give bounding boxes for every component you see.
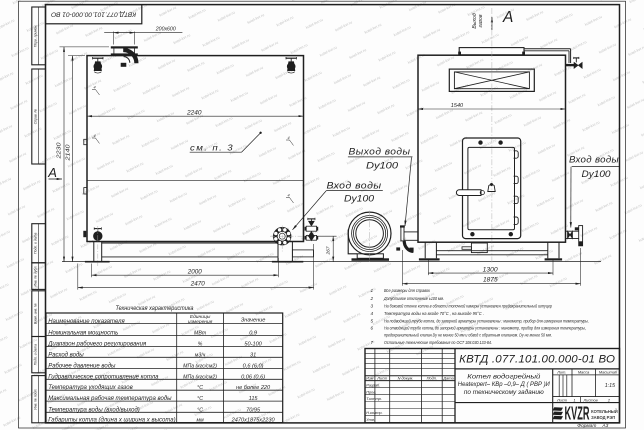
svg-text:Все размеры для справок: Все размеры для справок xyxy=(384,288,431,293)
svg-text:Значение: Значение xyxy=(241,318,266,324)
svg-text:Справ. №: Справ. № xyxy=(34,108,38,124)
svg-text:Техническая характеристика: Техническая характеристика xyxy=(116,306,195,312)
svg-text:Инв. № подл.: Инв. № подл. xyxy=(34,389,38,410)
svg-text:Максимальная рабочая температу: Максимальная рабочая температура воды xyxy=(48,396,172,402)
svg-text:Номинальная мощность: Номинальная мощность xyxy=(48,331,118,337)
svg-text:Остальные технические требован: Остальные технические требования по ОСТ … xyxy=(384,340,492,345)
svg-text:КОТЕЛЬНЫЙ: КОТЕЛЬНЫЙ xyxy=(591,409,618,414)
svg-text:1300: 1300 xyxy=(483,267,499,274)
svg-text:Подп.: Подп. xyxy=(427,376,437,381)
svg-text:Наименование показателя: Наименование показателя xyxy=(48,319,125,325)
svg-text:Выход воды: Выход воды xyxy=(349,147,411,157)
svg-text:Листов: Листов xyxy=(583,398,598,403)
svg-text:Лит.: Лит. xyxy=(556,370,566,375)
svg-text:Перв. примен.: Перв. примен. xyxy=(34,25,38,48)
svg-text:7: 7 xyxy=(371,340,374,345)
svg-text:A: A xyxy=(47,165,57,180)
svg-text:Подп. и дата: Подп. и дата xyxy=(34,344,38,365)
svg-text:%: % xyxy=(198,341,203,347)
svg-text:МПа (кгс/см2): МПа (кгс/см2) xyxy=(183,363,217,369)
svg-text:Н.контр.: Н.контр. xyxy=(366,410,382,415)
svg-text:Гидравлическое сопротивление к: Гидравлическое сопротивление котла xyxy=(48,374,159,380)
svg-text:Допустимое отклонение ±100 мм: Допустимое отклонение ±100 мм. xyxy=(383,296,444,301)
svg-text:2470: 2470 xyxy=(190,281,205,288)
svg-text:1: 1 xyxy=(371,288,374,293)
svg-text:°С: °С xyxy=(197,396,203,402)
svg-text:1875: 1875 xyxy=(483,276,498,283)
svg-text:Диапазон рабочего регулировани: Диапазон рабочего регулирования xyxy=(47,341,147,347)
svg-text:4: 4 xyxy=(94,134,96,138)
svg-text:МПа (кгс/см2): МПа (кгс/см2) xyxy=(183,374,217,380)
svg-text:Лист: Лист xyxy=(556,398,568,403)
svg-text:Формат: Формат xyxy=(577,423,596,429)
svg-text:0,06 (0,6): 0,06 (0,6) xyxy=(241,374,265,380)
svg-text:2: 2 xyxy=(370,296,374,301)
svg-text:см. п. 3: см. п. 3 xyxy=(190,142,234,152)
svg-text:Рабочее давление воды: Рабочее давление воды xyxy=(48,363,116,369)
svg-text:6: 6 xyxy=(371,326,374,331)
svg-text:1:15: 1:15 xyxy=(605,383,615,389)
svg-text:Температура воды на входе 70°: Температура воды на входе 70°С , на выхо… xyxy=(384,311,484,316)
svg-text:КВТД .077.101.00.000-01 ВО: КВТД .077.101.00.000-01 ВО xyxy=(459,353,615,365)
svg-text:Температура уходящих газов: Температура уходящих газов xyxy=(48,385,133,391)
svg-text:не более 220: не более 220 xyxy=(236,385,271,391)
svg-text:Взам. инв. №: Взам. инв. № xyxy=(34,303,38,324)
svg-text:2240: 2240 xyxy=(186,109,202,116)
svg-text:4: 4 xyxy=(94,86,96,90)
svg-text:50-100: 50-100 xyxy=(244,341,262,347)
svg-text:4: 4 xyxy=(371,311,374,316)
svg-text:На боковой стенке котла в обла: На боковой стенке котла в области топочн… xyxy=(384,302,552,308)
svg-text:KVZR: KVZR xyxy=(565,403,590,423)
svg-text:предохранительный клапан Dу н: предохранительный клапан Dу не менее 50 … xyxy=(384,332,552,338)
svg-text:3: 3 xyxy=(371,303,374,308)
svg-text:1540: 1540 xyxy=(451,103,463,109)
svg-text:Лист: Лист xyxy=(376,376,388,381)
svg-text:31: 31 xyxy=(250,352,256,358)
svg-text:2470х1875х2230: 2470х1875х2230 xyxy=(231,418,276,424)
svg-text:2140: 2140 xyxy=(65,143,71,161)
svg-text:Dy100: Dy100 xyxy=(366,160,398,170)
svg-text:200х600: 200х600 xyxy=(155,27,176,33)
svg-text:Утв.: Утв. xyxy=(366,417,375,422)
svg-text:Масса: Масса xyxy=(578,370,590,375)
svg-text:0,6 (6,0): 0,6 (6,0) xyxy=(243,363,264,369)
svg-text:°С: °С xyxy=(197,385,203,391)
svg-text:5: 5 xyxy=(371,318,374,323)
svg-text:Расход воды: Расход воды xyxy=(48,352,84,358)
svg-text:На подводящей трубе котла, до: На подводящей трубе котла, до запорной а… xyxy=(384,317,589,323)
svg-text:На отводящей трубе котла, до з: На отводящей трубе котла, до запорной ар… xyxy=(384,325,586,331)
svg-text:газов: газов xyxy=(478,14,484,27)
svg-text:измерения: измерения xyxy=(188,320,213,325)
svg-text:4: 4 xyxy=(288,194,290,198)
svg-text:0,9: 0,9 xyxy=(249,331,257,337)
svg-text:Котел водогрейный: Котел водогрейный xyxy=(467,372,541,380)
svg-text:Габариты котла (длина х ширина: Габариты котла (длина х ширина х высота) xyxy=(48,418,175,424)
svg-text:Вход воды: Вход воды xyxy=(569,155,619,165)
svg-text:°С: °С xyxy=(197,407,203,413)
svg-text:70/95: 70/95 xyxy=(246,407,261,413)
svg-text:КВТД.077.101.00.000-01 ВО: КВТД.077.101.00.000-01 ВО xyxy=(51,11,136,18)
svg-text:A: A xyxy=(502,9,513,26)
svg-text:Дата: Дата xyxy=(442,376,454,381)
svg-text:Масштаб: Масштаб xyxy=(599,370,618,375)
svg-text:Инв. № дубл.: Инв. № дубл. xyxy=(34,266,38,287)
svg-text:МВт: МВт xyxy=(194,331,207,337)
svg-text:ЗАВОД РЭП: ЗАВОД РЭП xyxy=(591,415,615,420)
svg-text:Т.контр.: Т.контр. xyxy=(366,396,382,401)
svg-text:Подп. и дата: Подп. и дата xyxy=(34,233,38,254)
svg-text:Dy100: Dy100 xyxy=(582,169,611,179)
svg-text:Вход воды: Вход воды xyxy=(327,180,382,190)
svg-text:Heatexpert– КВр –0,9– Д ( РВР: Heatexpert– КВр –0,9– Д ( РВР )И xyxy=(458,381,550,388)
svg-text:1: 1 xyxy=(573,398,575,403)
svg-text:4: 4 xyxy=(288,136,290,140)
svg-text:Пров.: Пров. xyxy=(366,389,376,394)
svg-text:по техническому заданию: по техническому заданию xyxy=(464,388,544,396)
svg-text:267: 267 xyxy=(326,246,332,255)
svg-text:2230: 2230 xyxy=(57,141,63,159)
svg-text:115: 115 xyxy=(249,396,259,402)
svg-text:Dy100: Dy100 xyxy=(344,194,374,204)
svg-text:Разраб.: Разраб. xyxy=(366,382,380,387)
svg-text:м3/ч: м3/ч xyxy=(195,352,206,358)
svg-text:А3: А3 xyxy=(601,423,608,429)
svg-text:2000: 2000 xyxy=(187,268,202,275)
svg-text:мм: мм xyxy=(197,418,205,424)
svg-text:N докум.: N докум. xyxy=(398,376,414,381)
svg-text:Температура воды (вход/выход): Температура воды (вход/выход) xyxy=(48,407,140,413)
svg-text:Изм: Изм xyxy=(366,376,374,381)
